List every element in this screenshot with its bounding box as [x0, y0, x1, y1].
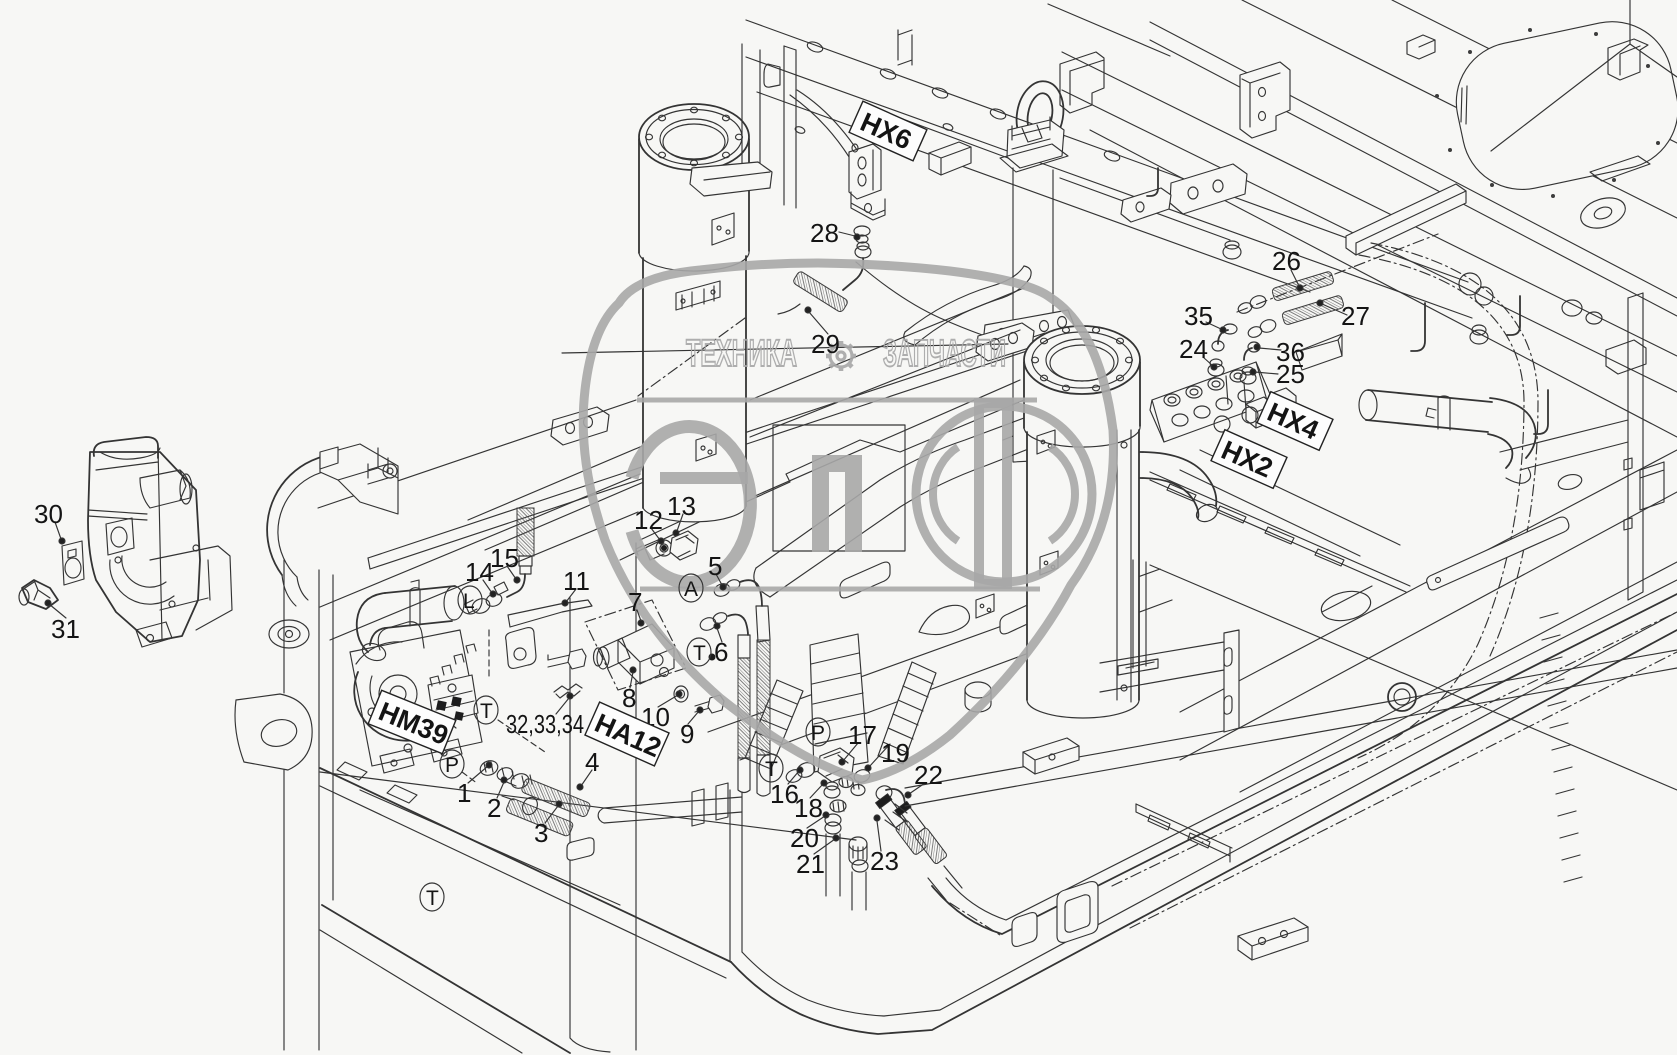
svg-text:32,33,34: 32,33,34	[506, 709, 584, 739]
svg-text:22: 22	[914, 760, 943, 790]
svg-text:28: 28	[810, 218, 839, 248]
svg-text:35: 35	[1184, 301, 1213, 331]
svg-text:18: 18	[794, 793, 823, 823]
svg-text:ЗАПЧАСТИ: ЗАПЧАСТИ	[883, 333, 1006, 375]
svg-text:15: 15	[490, 543, 519, 573]
svg-text:30: 30	[34, 499, 63, 529]
svg-text:13: 13	[667, 491, 696, 521]
svg-text:5: 5	[708, 551, 722, 581]
svg-text:9: 9	[680, 719, 694, 749]
svg-text:T: T	[426, 887, 439, 910]
svg-text:4: 4	[585, 747, 599, 777]
svg-text:3: 3	[534, 818, 548, 848]
svg-text:36: 36	[1276, 337, 1305, 367]
svg-text:ТЕХНИКА: ТЕХНИКА	[686, 333, 797, 375]
svg-text:17: 17	[848, 720, 877, 750]
svg-text:11: 11	[563, 566, 590, 596]
svg-text:21: 21	[796, 849, 825, 879]
svg-text:L: L	[463, 590, 475, 613]
svg-text:24: 24	[1179, 334, 1208, 364]
svg-text:26: 26	[1272, 246, 1301, 276]
svg-text:T: T	[693, 642, 706, 665]
svg-text:8: 8	[622, 683, 636, 713]
svg-text:29: 29	[811, 329, 840, 359]
svg-text:T: T	[765, 758, 778, 781]
svg-text:27: 27	[1341, 301, 1370, 331]
svg-text:31: 31	[51, 614, 80, 644]
svg-text:12: 12	[634, 505, 663, 535]
svg-text:2: 2	[487, 793, 501, 823]
svg-text:P: P	[445, 754, 459, 777]
svg-text:1: 1	[457, 778, 471, 808]
svg-text:A: A	[684, 578, 698, 601]
svg-text:23: 23	[870, 846, 899, 876]
svg-text:P: P	[811, 722, 825, 745]
svg-text:19: 19	[881, 738, 910, 768]
svg-text:6: 6	[714, 637, 728, 667]
svg-text:T: T	[480, 700, 493, 723]
svg-text:7: 7	[628, 587, 642, 617]
